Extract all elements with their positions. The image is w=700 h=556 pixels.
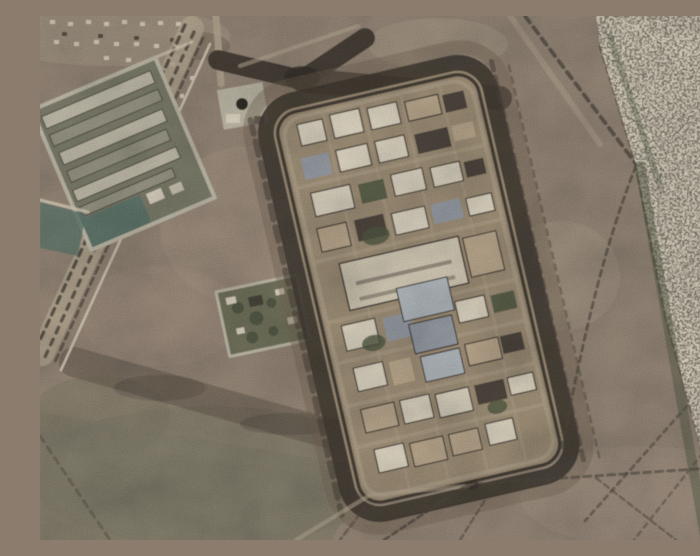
noise-overlays: [40, 16, 700, 540]
satellite-image: [40, 16, 700, 540]
film-grain-shape: [40, 16, 700, 540]
film-grain: [40, 16, 700, 540]
satellite-photo-canvas: [40, 16, 700, 540]
